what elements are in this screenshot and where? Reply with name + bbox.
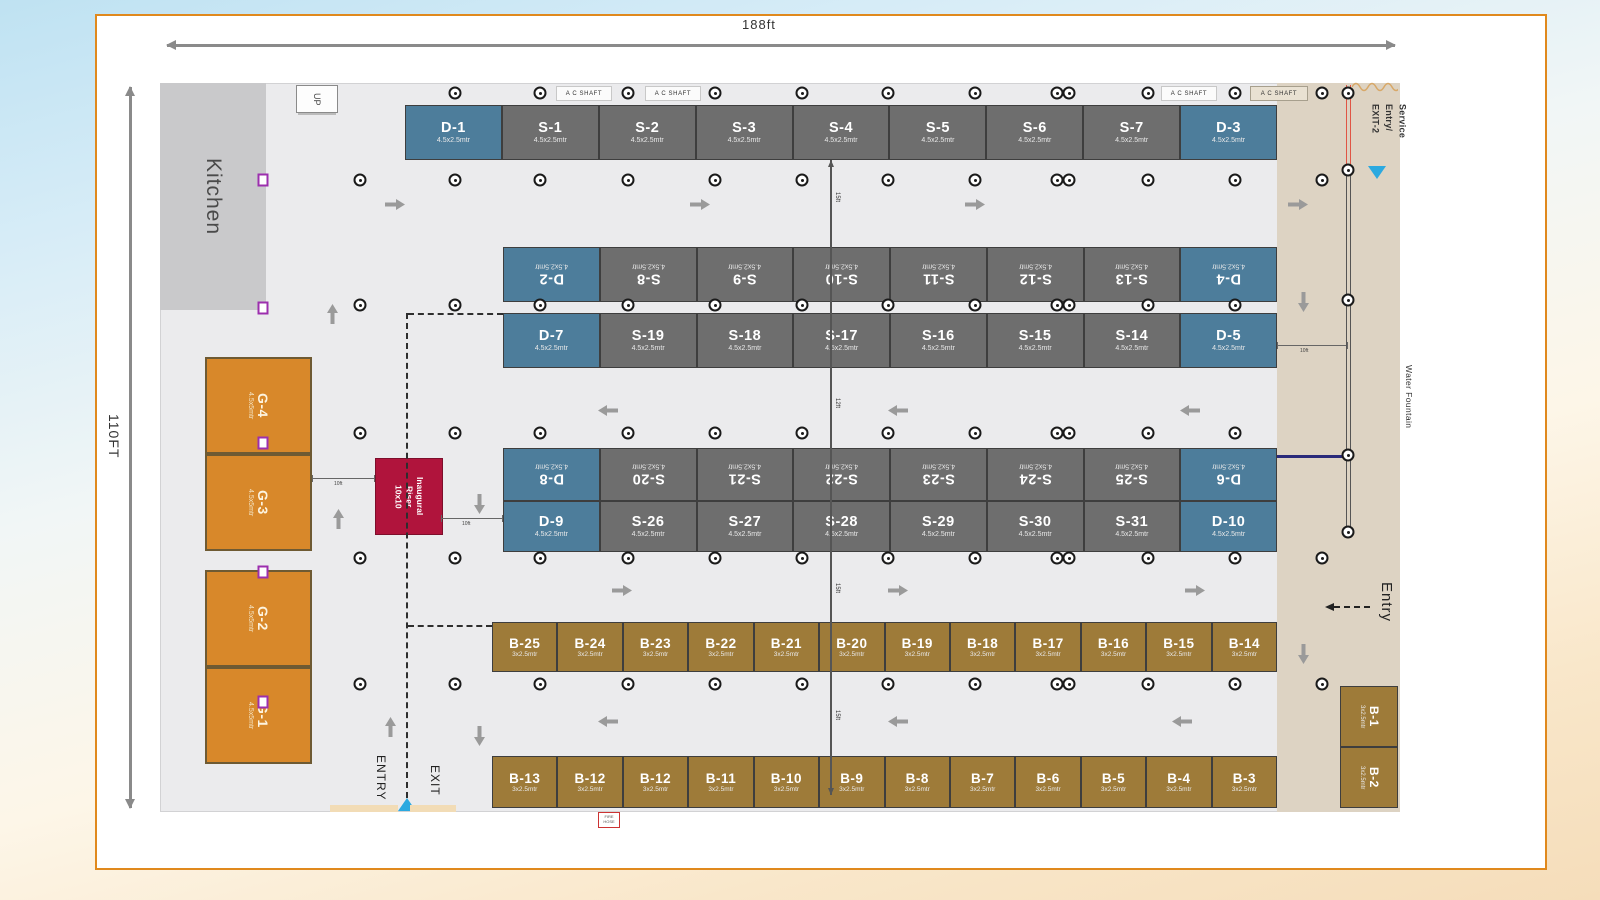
- booth-id: S-14: [1116, 328, 1149, 345]
- flow-arrow-l: [888, 400, 908, 418]
- booth-id: B-23: [640, 636, 671, 652]
- booth-size: 3x2.5mtr: [643, 786, 668, 793]
- width-dimension-label: 188ft: [742, 17, 776, 32]
- ac-shaft: A C SHAFT: [1250, 86, 1308, 101]
- column-marker: [1342, 449, 1355, 462]
- booth-size: 4.5x2.5mtr: [728, 531, 761, 539]
- flow-arrow-l: [598, 711, 618, 729]
- booth-S-2[interactable]: S-24.5x2.5mtr: [599, 105, 696, 160]
- booth-size: 3x2.5mtr: [1166, 786, 1191, 793]
- flow-arrow-l: [1172, 711, 1192, 729]
- booth-B-8[interactable]: B-83x2.5mtr: [885, 756, 950, 808]
- dashed-aisle-line: [406, 313, 408, 798]
- column-marker: [969, 87, 982, 100]
- aisle-dim-label: 15ft: [834, 583, 840, 593]
- booth-size: 3x2.5mtr: [1101, 786, 1126, 793]
- booth-size: 3x2.5mtr: [643, 651, 668, 658]
- column-marker: [1316, 87, 1329, 100]
- booth-id: B-12: [640, 771, 671, 787]
- booth-S-6[interactable]: S-64.5x2.5mtr: [986, 105, 1083, 160]
- booth-D-1[interactable]: D-14.5x2.5mtr: [405, 105, 502, 160]
- booth-id: B-7: [971, 771, 994, 787]
- booth-row-5: D-94.5x2.5mtrS-264.5x2.5mtrS-274.5x2.5mt…: [503, 501, 1277, 552]
- booth-size: 3x2.5mtr: [1232, 651, 1257, 658]
- booth-S-28[interactable]: S-284.5x2.5mtr: [793, 501, 890, 552]
- booth-G-2[interactable]: G-24.5x5mtr: [205, 570, 312, 667]
- booth-B-17[interactable]: B-173x2.5mtr: [1015, 622, 1080, 672]
- column-marker: [1142, 299, 1155, 312]
- column-marker: [1063, 427, 1076, 440]
- height-dimension-line: [129, 87, 132, 808]
- booth-size: 4.5x2.5mtr: [437, 137, 470, 145]
- booth-S-25[interactable]: S-254.5x2.5mtr: [1084, 448, 1181, 501]
- booth-B-14[interactable]: B-143x2.5mtr: [1212, 622, 1277, 672]
- booth-row-b-lower: B-133x2.5mtrB-123x2.5mtrB-123x2.5mtrB-11…: [492, 756, 1277, 808]
- booth-S-22[interactable]: S-224.5x2.5mtr: [793, 448, 890, 501]
- water-fountain-label: Water Fountain: [1404, 365, 1414, 428]
- column-marker: [622, 174, 635, 187]
- booth-size: 4.5x2.5mtr: [632, 531, 665, 539]
- stairs-up: UP: [296, 85, 338, 113]
- flow-arrow-d: [1293, 644, 1311, 664]
- booth-B-13[interactable]: B-133x2.5mtr: [492, 756, 557, 808]
- booth-S-3[interactable]: S-34.5x2.5mtr: [696, 105, 793, 160]
- booth-B-12[interactable]: B-123x2.5mtr: [623, 756, 688, 808]
- column-marker: [1063, 87, 1076, 100]
- booth-id: S-20: [632, 470, 665, 487]
- inaugural-riser[interactable]: Inaugural Riser 10x10: [375, 458, 443, 535]
- exit-bottom-label: EXIT: [428, 765, 442, 796]
- booth-S-11[interactable]: S-114.5x2.5mtr: [890, 247, 987, 302]
- utility-marker: [258, 566, 269, 579]
- booth-size: 4.5x2.5mtr: [921, 137, 954, 145]
- booth-size: 3x2.5mtr: [1166, 651, 1191, 658]
- up-label: UP: [312, 93, 322, 106]
- booth-id: S-31: [1116, 514, 1149, 531]
- booth-G-1[interactable]: G-14.5x5mtr: [205, 667, 312, 764]
- column-marker: [1229, 552, 1242, 565]
- entry-bottom-label: ENTRY: [374, 755, 388, 800]
- height-dimension-label: 110FT: [106, 414, 122, 458]
- booth-size: 3x2.5mtr: [708, 651, 733, 658]
- booth-id: G-3: [255, 490, 271, 515]
- column-marker: [709, 174, 722, 187]
- booth-id: S-15: [1019, 328, 1052, 345]
- booth-S-29[interactable]: S-294.5x2.5mtr: [890, 501, 987, 552]
- column-marker: [882, 552, 895, 565]
- booth-size: 4.5x2.5mtr: [922, 262, 955, 270]
- column-marker: [1142, 552, 1155, 565]
- column-marker: [969, 552, 982, 565]
- column-marker: [1142, 678, 1155, 691]
- booth-B-20[interactable]: B-203x2.5mtr: [819, 622, 884, 672]
- booth-id: D-3: [1216, 120, 1241, 137]
- booth-B-16[interactable]: B-163x2.5mtr: [1081, 622, 1146, 672]
- column-marker: [969, 174, 982, 187]
- booth-S-26[interactable]: S-264.5x2.5mtr: [600, 501, 697, 552]
- booth-B-18[interactable]: B-183x2.5mtr: [950, 622, 1015, 672]
- service-entry-triangle: [1368, 166, 1386, 179]
- booth-size: 4.5x2.5mtr: [631, 137, 664, 145]
- column-marker: [1342, 87, 1355, 100]
- flow-arrow-u: [383, 717, 401, 737]
- booth-id: B-16: [1098, 636, 1129, 652]
- booth-id: S-4: [829, 120, 853, 137]
- booth-size: 3x2.5mtr: [970, 651, 995, 658]
- column-marker: [534, 174, 547, 187]
- aisle-dim-label: 12ft: [834, 398, 840, 408]
- booth-id: D-2: [539, 270, 564, 287]
- column-marker: [882, 174, 895, 187]
- booth-B-25[interactable]: B-253x2.5mtr: [492, 622, 557, 672]
- column-marker: [1229, 427, 1242, 440]
- booth-S-16[interactable]: S-164.5x2.5mtr: [890, 313, 987, 368]
- booth-S-17[interactable]: S-174.5x2.5mtr: [793, 313, 890, 368]
- booth-size: 3x2.5mtr: [577, 651, 602, 658]
- booth-B-6[interactable]: B-63x2.5mtr: [1015, 756, 1080, 808]
- flow-arrow-r: [385, 197, 405, 215]
- booth-B-2[interactable]: B-23x2.5mtr: [1340, 747, 1398, 808]
- booth-id: D-8: [539, 470, 564, 487]
- column-marker: [969, 299, 982, 312]
- flow-arrow-d: [469, 726, 487, 746]
- booth-B-3[interactable]: B-33x2.5mtr: [1212, 756, 1277, 808]
- aisle-dim-label: 15ft: [834, 192, 840, 202]
- booth-id: S-21: [729, 470, 762, 487]
- column-marker: [1142, 427, 1155, 440]
- booth-S-5[interactable]: S-54.5x2.5mtr: [889, 105, 986, 160]
- column-marker: [534, 552, 547, 565]
- column-marker: [1063, 174, 1076, 187]
- booth-D-10[interactable]: D-104.5x2.5mtr: [1180, 501, 1277, 552]
- flow-arrow-r: [612, 583, 632, 601]
- booth-D-5[interactable]: D-54.5x2.5mtr: [1180, 313, 1277, 368]
- column-marker: [796, 678, 809, 691]
- booth-B-1[interactable]: B-13x2.5mtr: [1340, 686, 1398, 747]
- booth-S-31[interactable]: S-314.5x2.5mtr: [1084, 501, 1181, 552]
- column-marker: [622, 87, 635, 100]
- booth-D-7[interactable]: D-74.5x2.5mtr: [503, 313, 600, 368]
- booth-B-22[interactable]: B-223x2.5mtr: [688, 622, 753, 672]
- column-marker: [1316, 552, 1329, 565]
- booth-S-27[interactable]: S-274.5x2.5mtr: [697, 501, 794, 552]
- booth-id: S-16: [922, 328, 955, 345]
- booth-size: 3x2.5mtr: [1358, 705, 1365, 728]
- booth-D-8[interactable]: D-84.5x2.5mtr: [503, 448, 600, 501]
- column-marker: [1229, 678, 1242, 691]
- column-marker: [449, 552, 462, 565]
- ac-shaft: A C SHAFT: [645, 86, 701, 101]
- booth-size: 4.5x2.5mtr: [632, 345, 665, 353]
- column-marker: [354, 299, 367, 312]
- booth-id: B-8: [906, 771, 929, 787]
- booth-id: S-3: [732, 120, 756, 137]
- booth-size: 4.5x2.5mtr: [534, 137, 567, 145]
- gap-dim-label: 10ft: [334, 481, 342, 487]
- booth-D-4[interactable]: D-44.5x2.5mtr: [1180, 247, 1277, 302]
- column-marker: [534, 299, 547, 312]
- door-opening: [410, 805, 456, 812]
- booth-id: D-6: [1216, 470, 1241, 487]
- booth-id: D-7: [539, 328, 564, 345]
- booth-size: 4.5x2.5mtr: [535, 262, 568, 270]
- booth-size: 4.5x5mtr: [246, 605, 254, 632]
- booth-B-12[interactable]: B-123x2.5mtr: [557, 756, 622, 808]
- booth-size: 4.5x5mtr: [246, 702, 254, 729]
- booth-S-12[interactable]: S-124.5x2.5mtr: [987, 247, 1084, 302]
- booth-S-20[interactable]: S-204.5x2.5mtr: [600, 448, 697, 501]
- flow-arrow-r: [690, 197, 710, 215]
- booth-id: D-1: [441, 120, 466, 137]
- booth-S-10[interactable]: S-104.5x2.5mtr: [793, 247, 890, 302]
- booth-id: B-11: [706, 771, 737, 787]
- door-opening: [330, 805, 398, 812]
- booth-id: B-1: [1366, 706, 1380, 727]
- flow-arrow-u: [325, 304, 343, 324]
- utility-marker: [258, 174, 269, 187]
- booth-size: 3x2.5mtr: [1232, 786, 1257, 793]
- column-marker: [622, 427, 635, 440]
- riser-line3: 10x10: [393, 485, 404, 509]
- flow-arrow-l: [888, 711, 908, 729]
- booth-S-4[interactable]: S-44.5x2.5mtr: [793, 105, 890, 160]
- booth-row-2: D-24.5x2.5mtrS-84.5x2.5mtrS-94.5x2.5mtrS…: [503, 247, 1277, 302]
- booth-size: 3x2.5mtr: [839, 786, 864, 793]
- booth-id: D-9: [539, 514, 564, 531]
- booth-size: 4.5x2.5mtr: [1115, 531, 1148, 539]
- booth-G-3[interactable]: G-34.5x5mtr: [205, 454, 312, 551]
- utility-marker: [258, 437, 269, 450]
- aisle-dim-label: 15ft: [834, 710, 840, 720]
- column-marker: [709, 552, 722, 565]
- booth-size: 4.5x2.5mtr: [1212, 262, 1245, 270]
- booth-size: 4.5x2.5mtr: [535, 345, 568, 353]
- flow-arrow-d: [469, 494, 487, 514]
- booth-id: B-13: [509, 771, 540, 787]
- booth-size: 4.5x5mtr: [246, 489, 254, 516]
- column-marker: [709, 299, 722, 312]
- gap-dim-line: [441, 518, 503, 519]
- booth-D-6[interactable]: D-64.5x2.5mtr: [1180, 448, 1277, 501]
- booth-S-1[interactable]: S-14.5x2.5mtr: [502, 105, 599, 160]
- booth-size: 4.5x2.5mtr: [728, 462, 761, 470]
- booth-B-19[interactable]: B-193x2.5mtr: [885, 622, 950, 672]
- gap-dim-line: [312, 478, 375, 479]
- booth-size: 3x2.5mtr: [905, 651, 930, 658]
- column-marker: [796, 427, 809, 440]
- booth-B-23[interactable]: B-233x2.5mtr: [623, 622, 688, 672]
- booth-id: B-3: [1233, 771, 1256, 787]
- ac-shaft: A C SHAFT: [1161, 86, 1217, 101]
- booth-id: S-19: [632, 328, 665, 345]
- booth-size: 3x2.5mtr: [708, 786, 733, 793]
- column-marker: [796, 552, 809, 565]
- booth-size: 4.5x2.5mtr: [1019, 531, 1052, 539]
- booth-size: 4.5x2.5mtr: [632, 462, 665, 470]
- dashed-aisle-branch: [408, 313, 503, 315]
- booth-B-15[interactable]: B-153x2.5mtr: [1146, 622, 1211, 672]
- column-marker: [882, 427, 895, 440]
- column-marker: [354, 427, 367, 440]
- column-marker: [1342, 526, 1355, 539]
- booth-id: S-23: [922, 470, 955, 487]
- column-marker: [1342, 164, 1355, 177]
- column-marker: [709, 427, 722, 440]
- booth-size: 4.5x2.5mtr: [1019, 345, 1052, 353]
- aisle-dimension-line: [830, 160, 832, 795]
- booth-S-21[interactable]: S-214.5x2.5mtr: [697, 448, 794, 501]
- booth-size: 3x2.5mtr: [1035, 651, 1060, 658]
- booth-S-7[interactable]: S-74.5x2.5mtr: [1083, 105, 1180, 160]
- booth-size: 3x2.5mtr: [970, 786, 995, 793]
- booth-S-24[interactable]: S-244.5x2.5mtr: [987, 448, 1084, 501]
- booth-id: G-2: [255, 606, 271, 631]
- column-marker: [1142, 87, 1155, 100]
- booth-size: 3x2.5mtr: [512, 786, 537, 793]
- flow-arrow-r: [888, 583, 908, 601]
- booth-D-9[interactable]: D-94.5x2.5mtr: [503, 501, 600, 552]
- column-marker: [534, 87, 547, 100]
- booth-id: S-30: [1019, 514, 1052, 531]
- booth-id: S-12: [1019, 270, 1052, 287]
- booth-size: 4.5x2.5mtr: [1212, 137, 1245, 145]
- booth-size: 4.5x2.5mtr: [535, 531, 568, 539]
- column-marker: [449, 87, 462, 100]
- booth-id: B-19: [902, 636, 933, 652]
- utility-marker: [258, 696, 269, 709]
- booth-row-4: D-84.5x2.5mtrS-204.5x2.5mtrS-214.5x2.5mt…: [503, 448, 1277, 501]
- column-marker: [354, 552, 367, 565]
- booth-B-4[interactable]: B-43x2.5mtr: [1146, 756, 1211, 808]
- booth-id: B-12: [575, 771, 606, 787]
- booth-B-21[interactable]: B-213x2.5mtr: [754, 622, 819, 672]
- utility-marker: [258, 302, 269, 315]
- booth-D-3[interactable]: D-34.5x2.5mtr: [1180, 105, 1277, 160]
- booth-size: 4.5x2.5mtr: [728, 262, 761, 270]
- column-marker: [449, 678, 462, 691]
- booth-size: 4.5x2.5mtr: [1019, 262, 1052, 270]
- column-marker: [1342, 294, 1355, 307]
- wavy-line: [1352, 82, 1398, 92]
- booth-id: G-4: [255, 393, 271, 418]
- booth-B-10[interactable]: B-103x2.5mtr: [754, 756, 819, 808]
- column-marker: [354, 678, 367, 691]
- dashed-aisle-branch: [408, 625, 492, 627]
- booth-id: B-15: [1163, 636, 1194, 652]
- booth-size: 4.5x2.5mtr: [1212, 531, 1245, 539]
- booth-S-19[interactable]: S-194.5x2.5mtr: [600, 313, 697, 368]
- column-marker: [1229, 299, 1242, 312]
- booth-S-8[interactable]: S-84.5x2.5mtr: [600, 247, 697, 302]
- booth-size: 3x2.5mtr: [774, 651, 799, 658]
- booth-id: S-2: [635, 120, 659, 137]
- column-marker: [709, 87, 722, 100]
- column-marker: [882, 678, 895, 691]
- booth-size: 3x2.5mtr: [577, 786, 602, 793]
- booth-row-3: D-74.5x2.5mtrS-194.5x2.5mtrS-184.5x2.5mt…: [503, 313, 1277, 368]
- ac-shaft: A C SHAFT: [556, 86, 612, 101]
- column-marker: [1316, 678, 1329, 691]
- booth-B-9[interactable]: B-93x2.5mtr: [819, 756, 884, 808]
- booth-size: 4.5x2.5mtr: [535, 462, 568, 470]
- booth-size: 4.5x2.5mtr: [1019, 462, 1052, 470]
- booth-D-2[interactable]: D-24.5x2.5mtr: [503, 247, 600, 302]
- column-marker: [796, 299, 809, 312]
- booth-id: S-26: [632, 514, 665, 531]
- booth-B-5[interactable]: B-53x2.5mtr: [1081, 756, 1146, 808]
- booth-size: 3x2.5mtr: [1101, 651, 1126, 658]
- booth-B-24[interactable]: B-243x2.5mtr: [557, 622, 622, 672]
- booth-id: S-9: [733, 270, 757, 287]
- booth-id: D-10: [1212, 514, 1245, 531]
- booth-S-13[interactable]: S-134.5x2.5mtr: [1084, 247, 1181, 302]
- column-marker: [796, 174, 809, 187]
- kitchen-label: Kitchen: [201, 158, 225, 235]
- booth-id: B-5: [1102, 771, 1125, 787]
- column-marker: [622, 552, 635, 565]
- booth-id: B-10: [771, 771, 802, 787]
- riser-line1: Inaugural: [414, 477, 425, 515]
- booth-size: 4.5x2.5mtr: [728, 137, 761, 145]
- gap-dim-line: [1277, 345, 1348, 346]
- column-marker: [622, 678, 635, 691]
- booth-size: 4.5x2.5mtr: [728, 345, 761, 353]
- booth-id: B-24: [575, 636, 606, 652]
- booth-id: B-4: [1167, 771, 1190, 787]
- column-marker: [969, 678, 982, 691]
- booth-S-30[interactable]: S-304.5x2.5mtr: [987, 501, 1084, 552]
- column-marker: [1063, 678, 1076, 691]
- booth-id: B-17: [1032, 636, 1063, 652]
- booth-id: S-7: [1120, 120, 1144, 137]
- booth-id: B-25: [509, 636, 540, 652]
- booth-size: 4.5x2.5mtr: [1115, 137, 1148, 145]
- booth-B-7[interactable]: B-73x2.5mtr: [950, 756, 1015, 808]
- booth-size: 4.5x2.5mtr: [1115, 345, 1148, 353]
- booth-id: D-4: [1216, 270, 1241, 287]
- column-marker: [449, 299, 462, 312]
- booth-id: S-29: [922, 514, 955, 531]
- booth-size: 4.5x2.5mtr: [824, 137, 857, 145]
- column-marker: [1229, 87, 1242, 100]
- flow-arrow-l: [1180, 400, 1200, 418]
- booth-S-15[interactable]: S-154.5x2.5mtr: [987, 313, 1084, 368]
- booth-id: B-9: [840, 771, 863, 787]
- width-dimension-line: [167, 44, 1395, 47]
- column-marker: [969, 427, 982, 440]
- column-marker: [449, 427, 462, 440]
- booth-id: B-14: [1229, 636, 1260, 652]
- column-marker: [882, 299, 895, 312]
- booth-B-11[interactable]: B-113x2.5mtr: [688, 756, 753, 808]
- booth-size: 3x2.5mtr: [905, 786, 930, 793]
- booth-size: 3x2.5mtr: [1035, 786, 1060, 793]
- booth-size: 4.5x2.5mtr: [1018, 137, 1051, 145]
- column-marker: [709, 678, 722, 691]
- flow-arrow-r: [1288, 197, 1308, 215]
- column-marker: [622, 299, 635, 312]
- booth-id: B-6: [1036, 771, 1059, 787]
- booth-id: S-13: [1116, 270, 1149, 287]
- booth-S-23[interactable]: S-234.5x2.5mtr: [890, 448, 987, 501]
- booth-S-18[interactable]: S-184.5x2.5mtr: [697, 313, 794, 368]
- booth-size: 4.5x2.5mtr: [1212, 462, 1245, 470]
- flow-arrow-r: [1185, 583, 1205, 601]
- flow-arrow-r: [965, 197, 985, 215]
- booth-id: S-11: [922, 270, 954, 287]
- booth-S-9[interactable]: S-94.5x2.5mtr: [697, 247, 794, 302]
- booth-S-14[interactable]: S-144.5x2.5mtr: [1084, 313, 1181, 368]
